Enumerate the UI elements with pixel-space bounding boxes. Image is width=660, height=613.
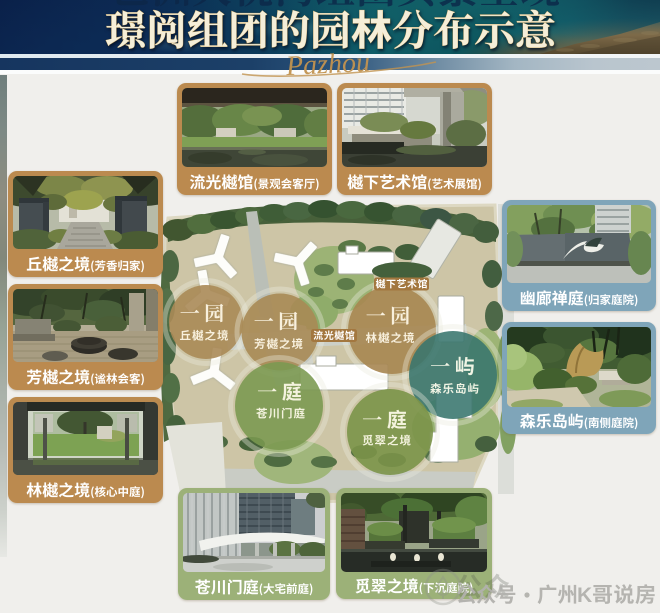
svg-text:K: K [577,584,592,607]
